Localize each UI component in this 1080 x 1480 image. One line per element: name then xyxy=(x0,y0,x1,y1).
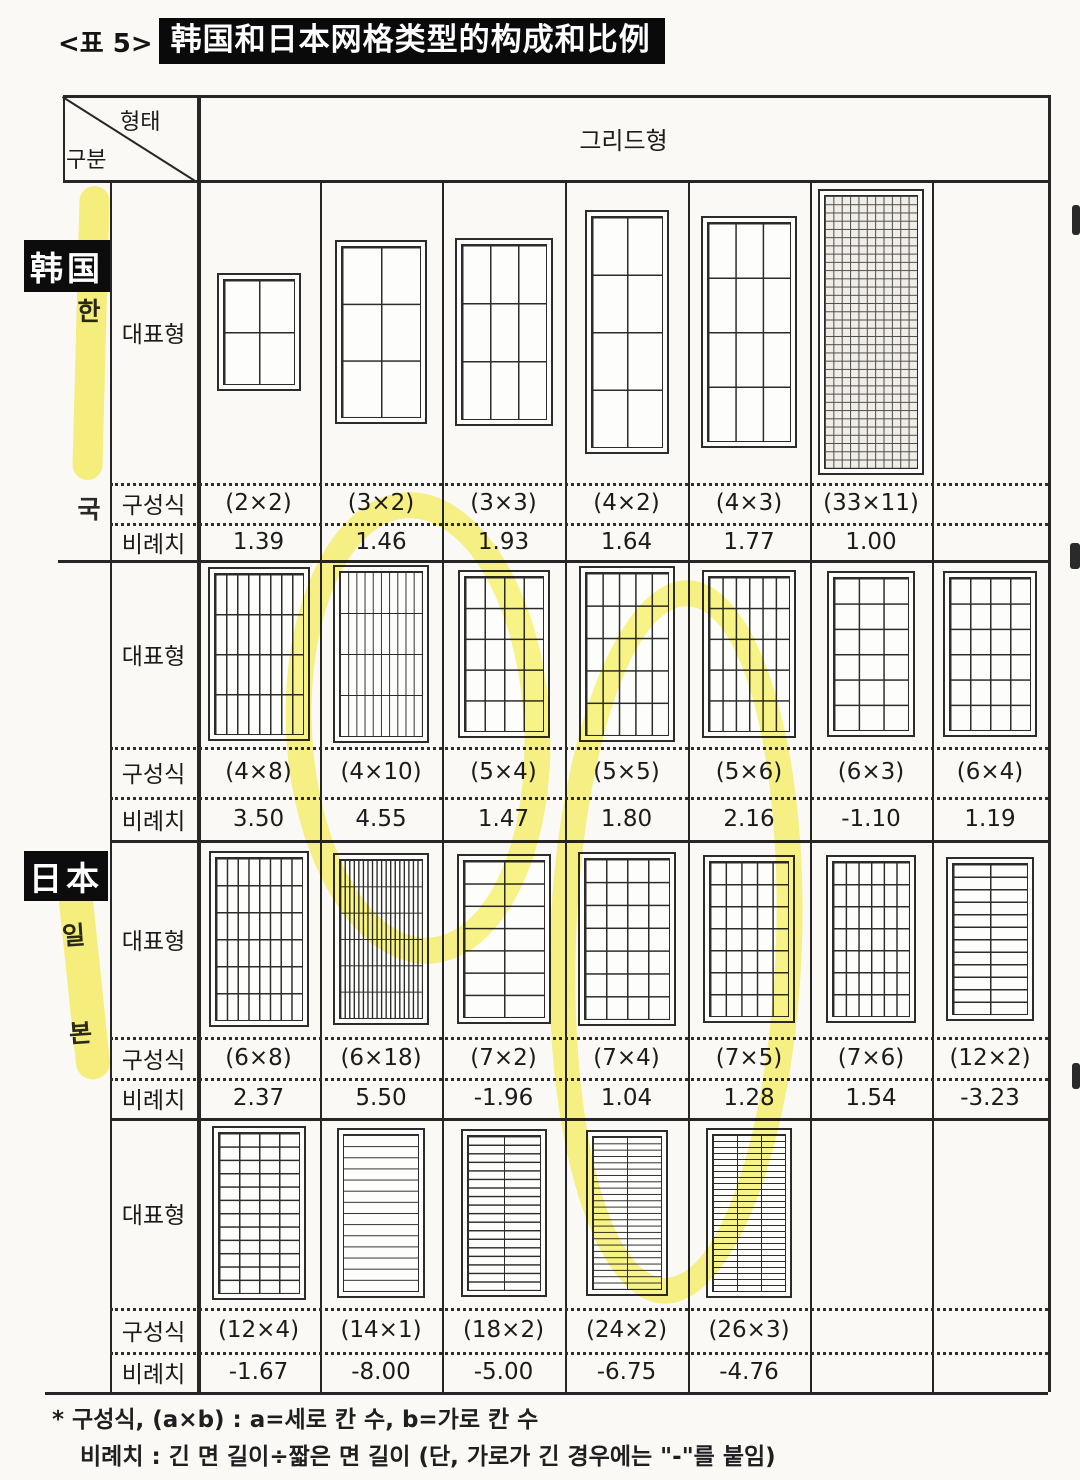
grid-diagram-inner xyxy=(833,577,909,731)
composition-cell-0-3: (4×2) xyxy=(565,483,688,523)
row-label-composition-2: 구성식 xyxy=(110,1037,197,1078)
grid-diagram-3x3 xyxy=(455,238,553,426)
composition-cell-3-0: (12×4) xyxy=(197,1308,320,1352)
proportion-cell-3-1: -8.00 xyxy=(320,1352,442,1392)
japan-overlay-label: 日本 xyxy=(24,851,108,901)
proportion-cell-0-4: 1.77 xyxy=(688,523,810,560)
grid-type-column-header: 그리드형 xyxy=(199,97,1048,180)
row-label-proportion-0: 비례치 xyxy=(110,523,197,560)
footnote-composition: * 구성식, (a×b) : a=세로 칸 수, b=가로 칸 수 xyxy=(52,1402,776,1439)
grid-diagram-4x2 xyxy=(585,210,669,454)
grid-diagram-12x4 xyxy=(212,1126,306,1300)
proportion-cell-2-5: 1.54 xyxy=(810,1078,932,1118)
composition-cell-3-1: (14×1) xyxy=(320,1308,442,1352)
composition-cell-1-5: (6×3) xyxy=(810,747,932,797)
grid-diagram-33x11 xyxy=(818,189,924,475)
grid-diagram-inner xyxy=(591,216,663,448)
grid-diagram-inner xyxy=(341,246,421,418)
composition-cell-0-0: (2×2) xyxy=(197,483,320,523)
korea-overlay-label: 韩国 xyxy=(24,240,110,292)
page-title: <표 5> 韩国和日本网格类型的构成和比例 xyxy=(58,18,665,64)
table-line xyxy=(197,95,201,1392)
grid-diagram-inner xyxy=(707,222,791,442)
composition-cell-2-5: (7×6) xyxy=(810,1037,932,1078)
grid-diagram-inner xyxy=(218,1132,300,1294)
grid-diagram-inner xyxy=(461,244,547,420)
composition-cell-3-4: (26×3) xyxy=(688,1308,810,1352)
composition-cell-0-5: (33×11) xyxy=(810,483,932,523)
proportion-cell-1-6: 1.19 xyxy=(932,797,1048,840)
grid-diagram-6x4 xyxy=(943,571,1037,737)
proportion-cell-2-2: -1.96 xyxy=(442,1078,565,1118)
grid-diagram-inner xyxy=(952,863,1028,1015)
composition-cell-2-1: (6×18) xyxy=(320,1037,442,1078)
composition-cell-2-2: (7×2) xyxy=(442,1037,565,1078)
row-label-proportion-3: 비례치 xyxy=(110,1352,197,1392)
scan-artifact xyxy=(1070,543,1080,569)
proportion-cell-1-5: -1.10 xyxy=(810,797,932,840)
grid-diagram-6x3 xyxy=(827,571,915,737)
grid-diagram-3x2 xyxy=(335,240,427,424)
row-label-representative-0: 대표형 xyxy=(110,181,197,483)
composition-cell-3-3: (24×2) xyxy=(565,1308,688,1352)
grid-diagram-inner xyxy=(223,279,295,385)
proportion-cell-0-0: 1.39 xyxy=(197,523,320,560)
grid-diagram-4x3 xyxy=(701,216,797,448)
grid-diagram-inner xyxy=(824,195,918,469)
proportion-cell-3-2: -5.00 xyxy=(442,1352,565,1392)
row-label-composition-1: 구성식 xyxy=(110,747,197,797)
proportion-cell-3-3: -6.75 xyxy=(565,1352,688,1392)
grid-diagram-14x1 xyxy=(337,1128,425,1298)
grid-diagram-12x2 xyxy=(946,857,1034,1021)
proportion-cell-2-1: 5.50 xyxy=(320,1078,442,1118)
proportion-cell-3-4: -4.76 xyxy=(688,1352,810,1392)
grid-diagram-7x6 xyxy=(826,855,916,1023)
scan-artifact xyxy=(1072,1063,1080,1089)
composition-cell-1-6: (6×4) xyxy=(932,747,1048,797)
composition-cell-2-6: (12×2) xyxy=(932,1037,1048,1078)
row-label-proportion-2: 비례치 xyxy=(110,1078,197,1118)
row-label-representative-2: 대표형 xyxy=(110,840,197,1037)
grid-diagram-18x2 xyxy=(461,1129,547,1297)
corner-label-division: 구분 xyxy=(66,142,106,174)
proportion-cell-0-3: 1.64 xyxy=(565,523,688,560)
corner-label-form: 형태 xyxy=(120,104,160,136)
row-label-representative-1: 대표형 xyxy=(110,560,197,747)
table-line xyxy=(45,1392,1048,1395)
title-highlight-box: 韩国和日本网格类型的构成和比例 xyxy=(159,18,665,64)
row-label-representative-3: 대표형 xyxy=(110,1118,197,1308)
composition-cell-0-4: (4×3) xyxy=(688,483,810,523)
grid-diagram-inner xyxy=(467,1135,541,1291)
row-label-composition-3: 구성식 xyxy=(110,1308,197,1352)
scanned-table-page: <표 5> 韩国和日本网格类型的构成和比例 형태 구분 그리드형 韩国 日本 한… xyxy=(0,0,1080,1480)
footnote-proportion: 비례치 : 긴 면 길이÷짧은 면 길이 (단, 가로가 긴 경우에는 "-"를… xyxy=(80,1439,776,1476)
composition-cell-3-2: (18×2) xyxy=(442,1308,565,1352)
footnotes: * 구성식, (a×b) : a=세로 칸 수, b=가로 칸 수 비례치 : … xyxy=(52,1402,776,1476)
grid-diagram-6x8 xyxy=(209,851,309,1027)
grid-diagram-inner xyxy=(343,1134,419,1292)
grid-diagram-inner xyxy=(949,577,1031,731)
row-label-proportion-1: 비례치 xyxy=(110,797,197,840)
scan-artifact xyxy=(1072,205,1080,235)
composition-cell-2-0: (6×8) xyxy=(197,1037,320,1078)
table-line xyxy=(63,95,1048,98)
table-line xyxy=(1048,95,1051,1392)
table-line xyxy=(63,95,65,180)
proportion-cell-2-0: 2.37 xyxy=(197,1078,320,1118)
row-label-composition-0: 구성식 xyxy=(110,483,197,523)
grid-diagram-inner xyxy=(832,861,910,1017)
grid-diagram-2x2 xyxy=(217,273,301,391)
korea-vertical-char-2: 국 xyxy=(77,490,100,526)
table-line xyxy=(58,560,1048,563)
table-line xyxy=(63,180,1048,183)
proportion-cell-0-5: 1.00 xyxy=(810,523,932,560)
grid-diagram-inner xyxy=(215,857,303,1021)
proportion-cell-2-6: -3.23 xyxy=(932,1078,1048,1118)
proportion-cell-3-0: -1.67 xyxy=(197,1352,320,1392)
table-number: <표 5> xyxy=(58,23,153,60)
